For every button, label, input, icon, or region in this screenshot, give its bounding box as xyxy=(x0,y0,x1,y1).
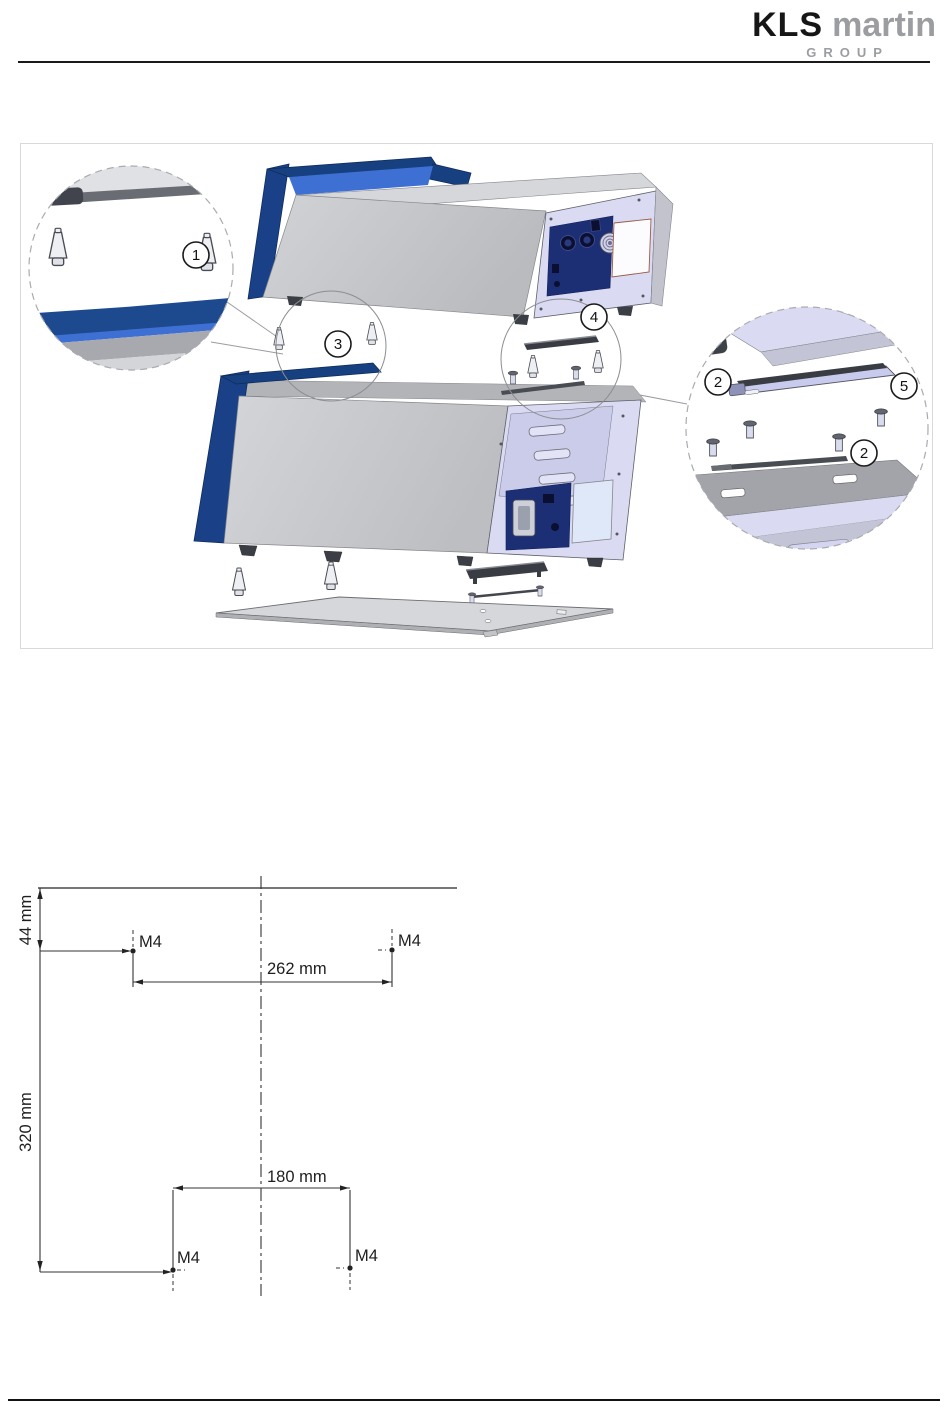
drilling-template-drawing: 44 mm 320 mm M4 M4 262 mm xyxy=(0,860,950,1340)
callout-2a: 2 xyxy=(705,369,731,395)
callout-1: 1 xyxy=(183,242,209,268)
chassis-side xyxy=(263,195,546,317)
lower-unit xyxy=(194,363,646,567)
dim-320mm-label: 320 mm xyxy=(17,1092,35,1152)
dim-262mm-label: 262 mm xyxy=(267,960,327,978)
exploded-view-panel: 1 3 4 2 5 2 xyxy=(20,143,933,649)
dim-44mm: 44 mm xyxy=(17,888,131,1272)
connector-panel xyxy=(547,216,613,296)
logo-kls-text: KLS xyxy=(752,8,823,42)
callout-2a-label: 2 xyxy=(714,374,722,391)
callout-3-label: 3 xyxy=(334,336,342,353)
m4-label-top-left: M4 xyxy=(139,933,162,951)
logo-group-text: GROUP xyxy=(752,46,936,59)
callout-4-label: 4 xyxy=(590,309,598,326)
rating-label xyxy=(572,480,613,543)
m4-label-top-right: M4 xyxy=(398,932,421,950)
callout-2b: 2 xyxy=(851,440,877,466)
detail-view-brackets xyxy=(681,292,932,561)
document-page: KLS martin GROUP xyxy=(0,0,950,1420)
hole-m4-bottom-right: M4 xyxy=(336,1190,378,1290)
callout-5-label: 5 xyxy=(900,378,908,395)
base-plate-parts xyxy=(216,562,613,637)
callout-3: 3 xyxy=(325,331,351,357)
callout-1-label: 1 xyxy=(192,247,200,264)
upper-unit xyxy=(248,157,673,325)
dim-262mm: 262 mm xyxy=(133,960,392,985)
hole-m4-top-left: M4 xyxy=(119,930,162,987)
base-plate xyxy=(216,597,613,637)
m4-label-bottom-left: M4 xyxy=(177,1249,200,1267)
m4-label-bottom-right: M4 xyxy=(355,1247,378,1265)
connector-panel xyxy=(506,483,571,550)
chassis-side xyxy=(224,396,508,553)
rating-label xyxy=(612,219,651,277)
callout-5: 5 xyxy=(891,373,917,399)
dim-180mm-label: 180 mm xyxy=(267,1168,327,1186)
detail-view-feet xyxy=(21,146,253,394)
header-divider xyxy=(18,61,930,63)
clamp-rod xyxy=(471,590,541,597)
logo-martin-text: martin xyxy=(832,8,936,42)
hole-m4-bottom-left: M4 xyxy=(170,1190,200,1291)
logo-wordmark: KLS martin xyxy=(752,8,936,42)
dim-44mm-label: 44 mm xyxy=(17,895,35,945)
footer-divider xyxy=(8,1399,940,1401)
exploded-view-diagram: 1 3 4 2 5 2 xyxy=(21,144,932,648)
kls-martin-logo: KLS martin GROUP xyxy=(752,8,936,59)
hole-m4-top-right: M4 xyxy=(378,929,421,987)
callout-4: 4 xyxy=(581,304,607,330)
callout-2b-label: 2 xyxy=(860,445,868,462)
